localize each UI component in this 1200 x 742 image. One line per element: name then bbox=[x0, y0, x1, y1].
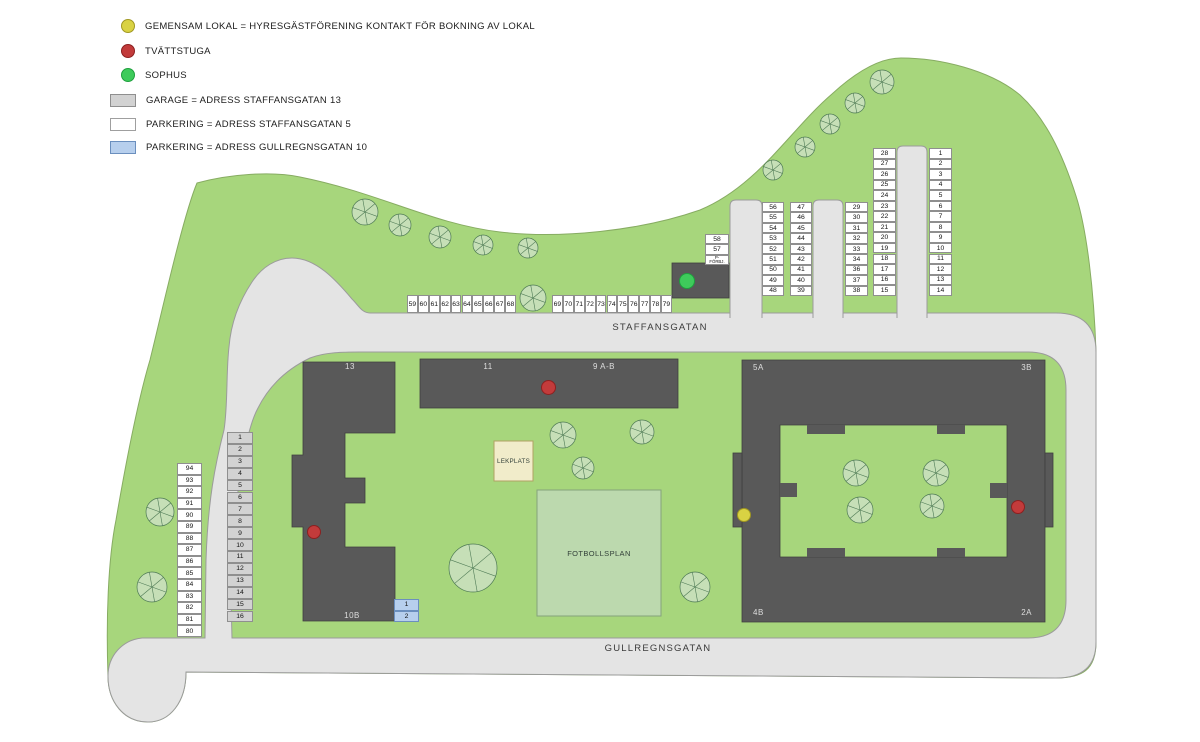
tree-icon bbox=[820, 114, 840, 134]
tree-icon bbox=[845, 93, 865, 113]
tree-icon bbox=[518, 238, 538, 258]
tree-icon bbox=[429, 226, 451, 248]
tree-icon bbox=[795, 137, 815, 157]
tree-icon bbox=[680, 572, 710, 602]
tree-icon bbox=[449, 544, 497, 592]
tree-icon bbox=[572, 457, 594, 479]
lekplats-box bbox=[494, 441, 533, 481]
tree-icon bbox=[389, 214, 411, 236]
tree-icon bbox=[630, 420, 654, 444]
tree-icon bbox=[847, 497, 873, 523]
tree-icon bbox=[870, 70, 894, 94]
sophus-building bbox=[672, 263, 729, 298]
site-plan-map: GEMENSAM LOKAL = HYRESGÄSTFÖRENING KONTA… bbox=[0, 0, 1200, 742]
tree-icon bbox=[473, 235, 493, 255]
tree-icon bbox=[352, 199, 378, 225]
fotbollsplan-box bbox=[537, 490, 661, 616]
tree-icon bbox=[923, 460, 949, 486]
tree-icon bbox=[763, 160, 783, 180]
tree-icon bbox=[843, 460, 869, 486]
tree-icon bbox=[550, 422, 576, 448]
building-11-9ab bbox=[420, 359, 678, 408]
tree-icon bbox=[137, 572, 167, 602]
tree-icon bbox=[520, 285, 546, 311]
tree-icon bbox=[920, 494, 944, 518]
tree-icon bbox=[146, 498, 174, 526]
site-plan-drawing bbox=[0, 0, 1200, 742]
